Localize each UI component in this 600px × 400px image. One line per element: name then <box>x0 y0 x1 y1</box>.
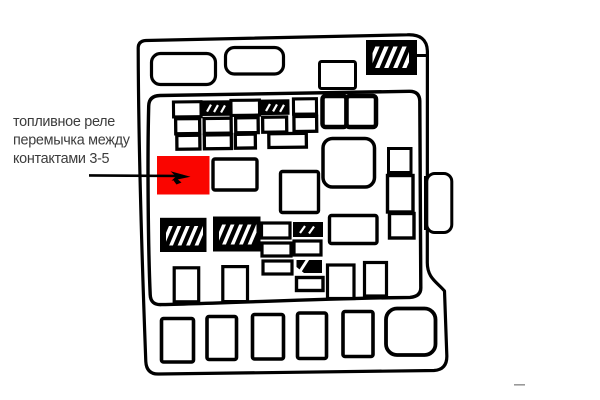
svg-text:контактами 3-5: контактами 3-5 <box>13 151 110 167</box>
svg-text:топливное реле: топливное реле <box>13 114 115 130</box>
svg-text:перемычка между: перемычка между <box>13 132 131 148</box>
